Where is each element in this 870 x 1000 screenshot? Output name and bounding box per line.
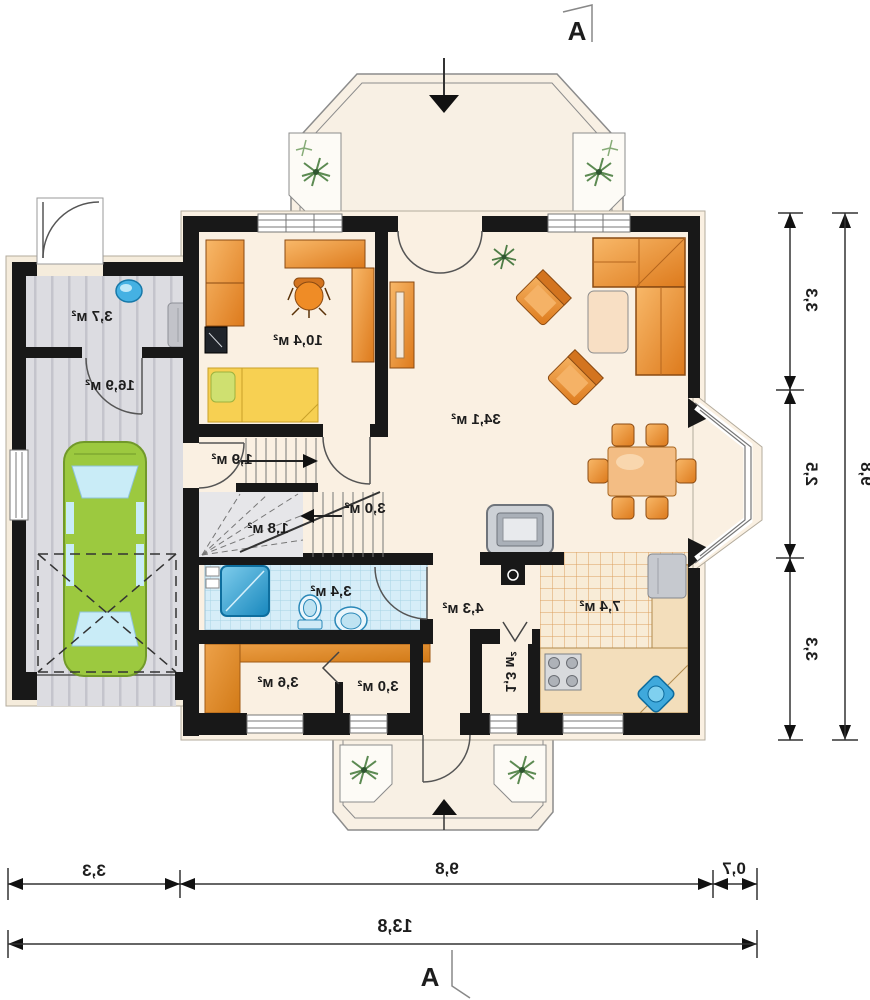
room-label: 34,1 м² [451,411,500,428]
window [563,715,623,733]
fireplace [487,505,553,554]
window [490,715,517,733]
desk [285,240,365,268]
room-label: 10,4 м² [273,332,322,349]
window [548,214,630,232]
dim-label: 9,8 [857,462,870,486]
pillow [211,372,235,402]
dining-chair [612,497,634,519]
section-marker-label: A [567,16,586,46]
top-porch [289,58,625,213]
dining-table [608,447,676,496]
bottom-porch [333,735,553,830]
coffee-table [588,291,628,353]
window [10,450,28,520]
dim-label: 13,8 [377,916,412,936]
room-label: 1,3 м² [502,651,519,692]
room-label: 3,4 м² [310,583,351,600]
room-label: 1,8 м² [247,520,288,537]
dining-chair [646,497,668,519]
room-label: 3,0 м² [344,500,385,517]
room-label: 1,9 м² [211,451,252,468]
dining-chair [612,424,634,446]
floor-plan-drawing: 3,7 м² 16,9 м² 10,4 м² 34,1 м² 1,9 м² 1,… [0,0,870,1000]
dining-chair [588,459,608,483]
room-label: 16,9 м² [85,377,134,394]
room-label: 4,3 м² [442,600,483,617]
dining-chair [646,424,668,446]
car-icon [64,442,146,676]
desk-return [352,268,374,362]
dining-chair [676,459,696,483]
dim-label: 3,3 [802,637,821,661]
dim-label: 2,5 [802,462,821,486]
window [247,715,303,733]
room-label: 3,7 м² [71,308,112,325]
dim-label: 9,8 [435,859,459,878]
window [350,715,387,733]
office-chair [295,282,323,310]
room-label: 7,4 м² [579,598,620,615]
dim-label: 0,7 [722,859,746,878]
fridge-icon [648,554,686,598]
room-label: 3,0 м² [357,678,398,695]
window [258,214,342,232]
dim-label: 3,3 [802,288,821,312]
floor-plan-page: 3,7 м² 16,9 м² 10,4 м² 34,1 м² 1,9 м² 1,… [0,0,870,1000]
dim-label: 3,3 [82,861,106,880]
section-marker-label: A [420,962,439,992]
room-label: 3,6 м² [257,674,298,691]
